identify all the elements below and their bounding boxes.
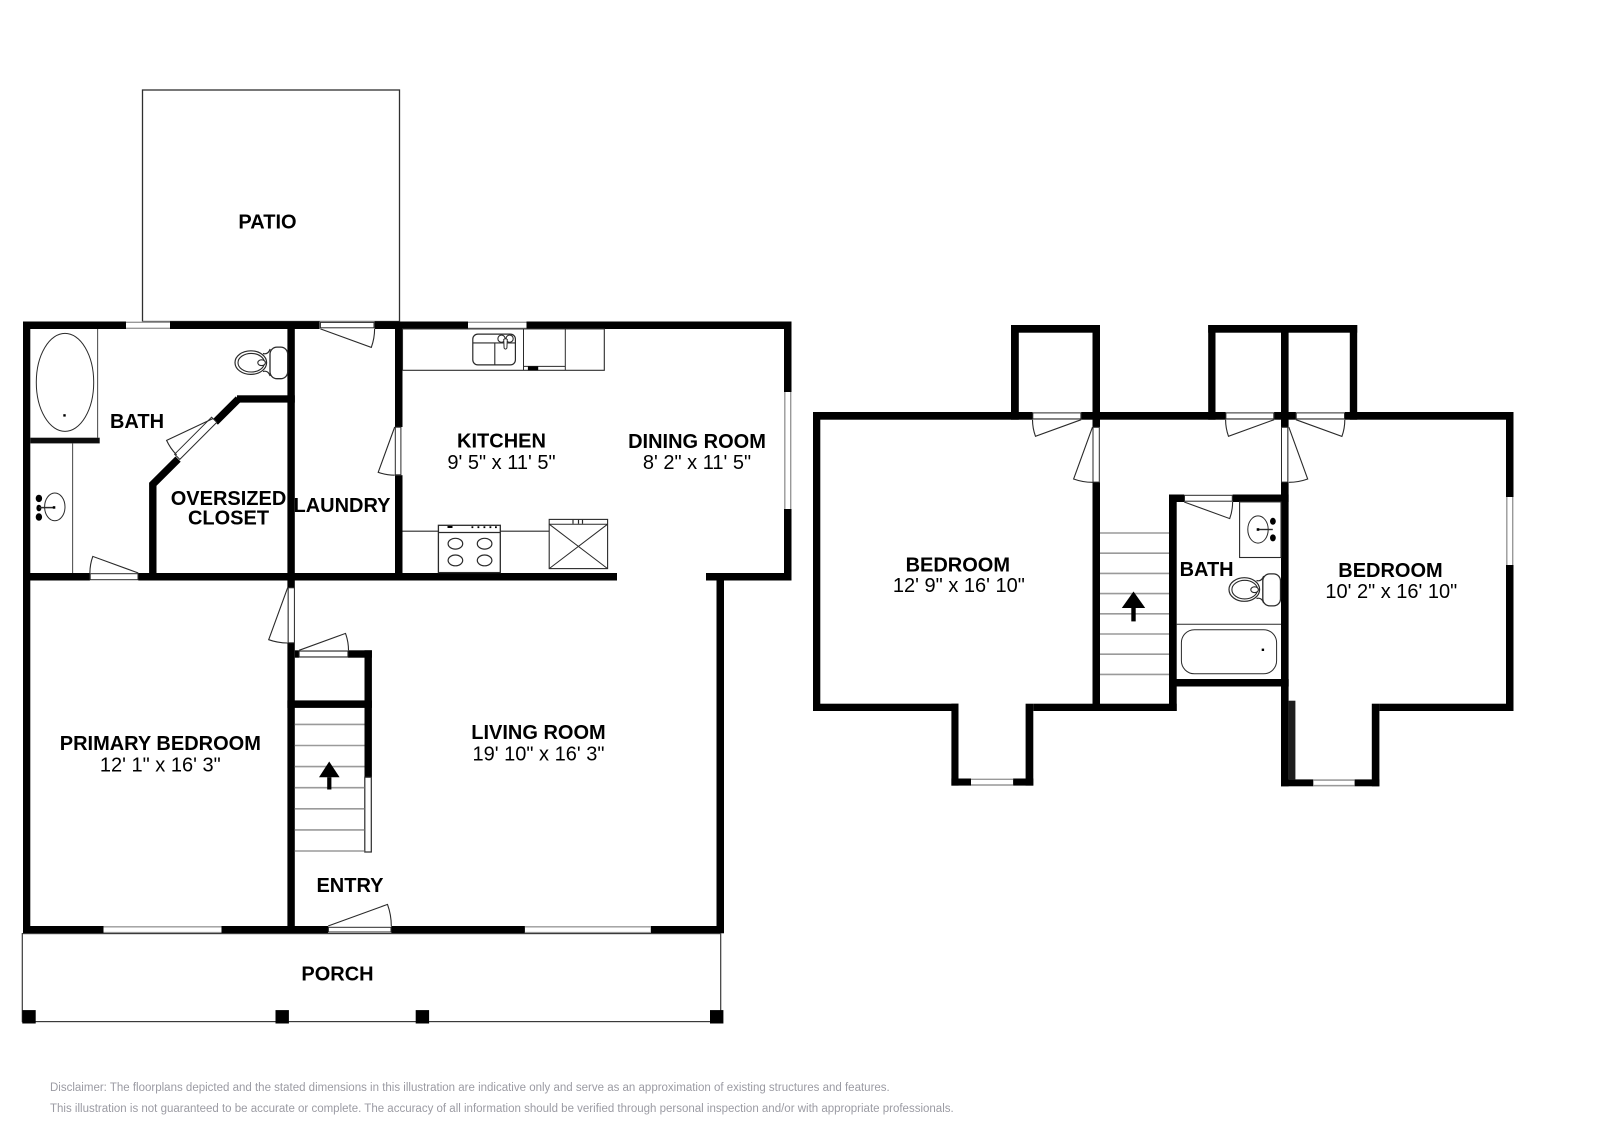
svg-text:10' 2" x 16' 10": 10' 2" x 16' 10" (1325, 581, 1457, 603)
svg-text:BATH: BATH (1180, 559, 1234, 581)
svg-text:PATIO: PATIO (238, 212, 296, 234)
svg-text:BATH: BATH (110, 411, 164, 433)
svg-text:BEDROOM: BEDROOM (906, 554, 1010, 576)
svg-text:LIVING ROOM: LIVING ROOM (471, 722, 605, 744)
svg-text:CLOSET: CLOSET (188, 508, 269, 530)
svg-text:DINING ROOM: DINING ROOM (628, 431, 766, 453)
svg-text:This illustration is not guara: This illustration is not guaranteed to b… (50, 1103, 954, 1115)
svg-text:ENTRY: ENTRY (316, 875, 384, 897)
svg-text:9' 5" x 11' 5": 9' 5" x 11' 5" (447, 452, 555, 474)
svg-text:PRIMARY BEDROOM: PRIMARY BEDROOM (60, 733, 261, 755)
svg-text:OVERSIZED: OVERSIZED (171, 488, 287, 510)
svg-text:Disclaimer: The floorplans dep: Disclaimer: The floorplans depicted and … (50, 1082, 890, 1094)
svg-text:12' 9" x 16' 10": 12' 9" x 16' 10" (893, 575, 1025, 597)
svg-text:BEDROOM: BEDROOM (1338, 560, 1442, 582)
svg-text:12' 1" x 16' 3": 12' 1" x 16' 3" (100, 755, 221, 777)
svg-text:PORCH: PORCH (301, 964, 373, 986)
svg-text:LAUNDRY: LAUNDRY (293, 495, 391, 517)
svg-text:KITCHEN: KITCHEN (457, 431, 546, 453)
svg-text:8' 2" x 11' 5": 8' 2" x 11' 5" (643, 452, 751, 474)
svg-text:19' 10" x 16' 3": 19' 10" x 16' 3" (473, 743, 605, 765)
